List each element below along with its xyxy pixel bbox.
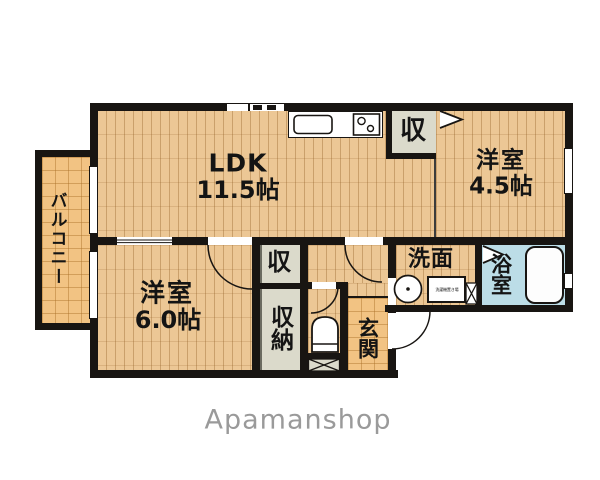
washing-machine-space: 洗濯機置き場	[427, 276, 466, 303]
apamanshop-logo-text: Apamanshop	[205, 405, 392, 436]
front-door-opening	[388, 313, 396, 349]
wall	[475, 245, 482, 312]
window	[564, 148, 573, 194]
western-room-4-5-label: 洋室	[476, 150, 526, 173]
balcony-label: バルコニー	[48, 192, 65, 287]
bathroom-label: 浴室	[490, 253, 511, 295]
wall	[300, 245, 308, 378]
door-opening	[388, 278, 396, 305]
room-divider-line	[434, 159, 436, 237]
wall	[386, 153, 436, 159]
kitchen-counter	[288, 111, 383, 138]
window	[564, 273, 573, 289]
wall-vent-opening	[227, 104, 248, 111]
wall	[386, 110, 392, 159]
door-opening	[345, 237, 383, 245]
western-room-6-0-size-label: 6.0帖	[135, 308, 202, 332]
wall	[260, 283, 300, 289]
front-door-swing-arc	[392, 311, 430, 349]
wall	[340, 282, 348, 378]
washroom-label: 洗面	[408, 249, 454, 271]
vent-dash	[267, 105, 276, 110]
washing-machine-space-label: 洗濯機置き場	[435, 287, 458, 293]
hallway-floor	[308, 245, 388, 283]
western-room-4-5-size-label: 4.5帖	[469, 176, 533, 199]
storage-hall-label: 収	[267, 250, 291, 274]
wall	[252, 245, 260, 378]
floor-plan: 洗濯機置き場	[0, 0, 600, 480]
door-opening	[312, 282, 336, 289]
toilet-room-floor	[308, 289, 340, 353]
wall	[388, 245, 396, 378]
vent-dash	[253, 105, 262, 110]
balcony-wall	[35, 150, 42, 330]
balcony-wall	[35, 150, 95, 157]
wall	[90, 370, 398, 378]
ldk-label: LDK	[208, 151, 267, 176]
sliding-door-opening	[117, 237, 172, 245]
balcony-wall	[35, 323, 95, 330]
storage-upper-label: 収	[400, 118, 426, 144]
wall	[90, 103, 573, 111]
window	[89, 251, 98, 319]
western-room-6-0-label: 洋室	[140, 281, 194, 306]
storage-closet-label: 収納	[268, 305, 291, 351]
door-opening	[208, 237, 252, 245]
window	[89, 166, 98, 234]
wall	[308, 353, 340, 359]
entrance-step-line	[348, 296, 388, 298]
ldk-size-label: 11.5帖	[196, 178, 279, 202]
entrance-label: 玄関	[357, 317, 378, 359]
